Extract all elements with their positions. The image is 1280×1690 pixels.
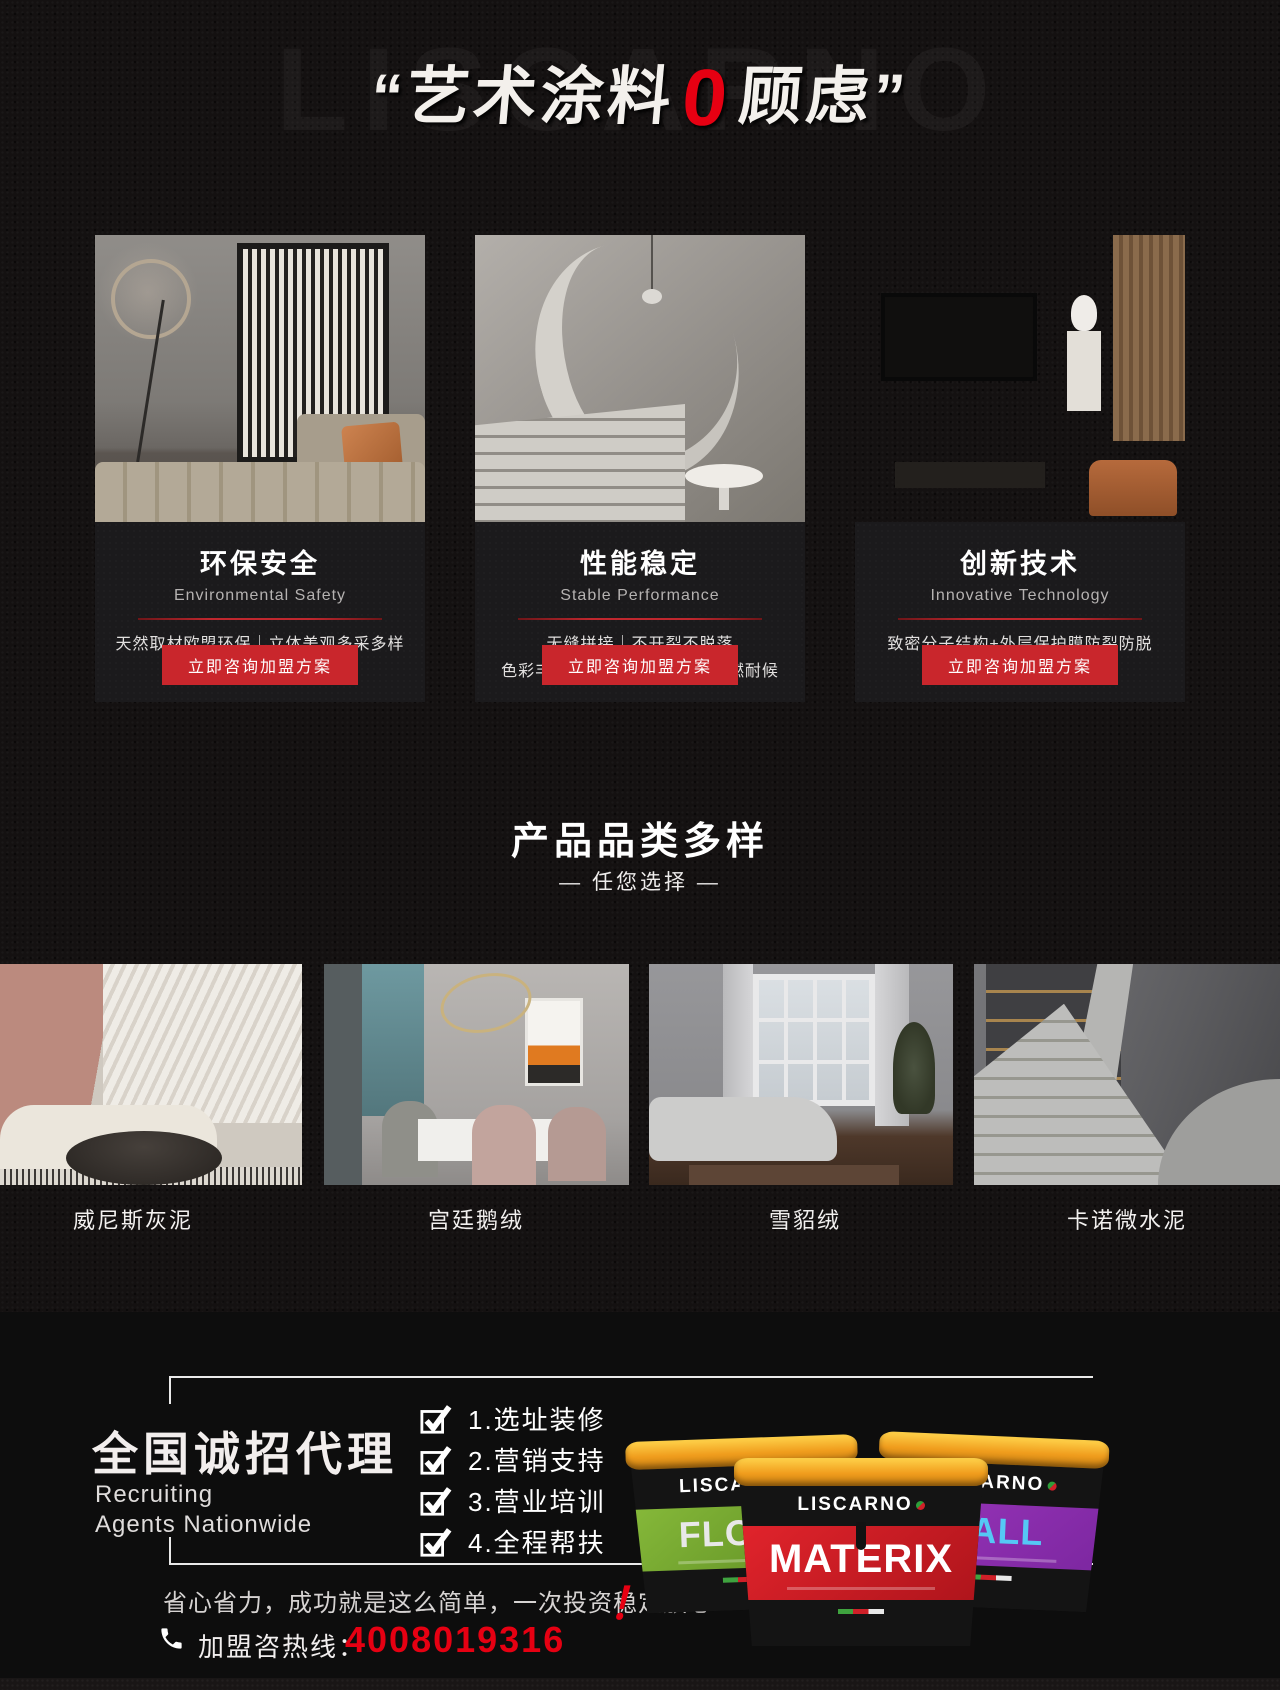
card-text-panel: 环保安全 Environmental Safety 天然取材欧盟环保｜立体美观多… <box>95 522 425 702</box>
sofa <box>95 462 425 522</box>
product-label: 雪貂绒 <box>769 1203 841 1235</box>
products-section-title: 产品品类多样 <box>0 810 1280 865</box>
agency-recruitment-section: 全国诚招代理 Recruiting Agents Nationwide 1.选址… <box>0 1312 1280 1678</box>
paint-buckets: LISCARNO FLOOR LISCARNO WALL <box>612 1430 1122 1670</box>
product-image-mink-velvet <box>649 964 953 1185</box>
product-label: 威尼斯灰泥 <box>73 1203 193 1235</box>
card-photo-spiral-staircase <box>475 235 805 522</box>
checkbox-icon <box>420 1444 452 1476</box>
consult-join-button[interactable]: 立即咨询加盟方案 <box>542 645 738 685</box>
dining-chair <box>472 1105 536 1185</box>
frame-line-top <box>169 1376 1093 1378</box>
card-subtitle: Stable Performance <box>475 587 805 605</box>
card-title: 创新技术 <box>855 522 1185 581</box>
wood-floor <box>689 1165 899 1185</box>
orange-chair <box>1089 460 1177 516</box>
bucket-lid <box>734 1458 988 1486</box>
product-image-palace-velvet <box>324 964 629 1185</box>
card-title: 环保安全 <box>95 522 425 581</box>
checklist-label: 3.营业培训 <box>468 1482 606 1519</box>
striped-wall <box>103 964 302 1123</box>
staircase-steps <box>475 404 685 522</box>
brand-logo-dot <box>916 1501 925 1510</box>
checklist-label: 1.选址装修 <box>468 1400 606 1437</box>
checklist-label: 4.全程帮扶 <box>468 1523 606 1560</box>
page-title-suffix: 顾虑” <box>736 62 912 132</box>
bucket-brand: LISCARNO <box>797 1494 912 1515</box>
frame-line-bottom-left <box>169 1537 171 1565</box>
bucket-fine-print <box>787 1587 934 1590</box>
teal-accent-wall <box>362 964 424 1116</box>
curved-partition <box>1158 1079 1280 1185</box>
side-table <box>685 464 763 488</box>
products-section-subtitle: — 任您选择 — <box>0 866 1280 896</box>
card-subtitle: Innovative Technology <box>855 587 1185 605</box>
pendant-lamp <box>642 289 662 304</box>
checklist-label: 2.营销支持 <box>468 1441 606 1478</box>
tv-cabinet <box>895 462 1045 488</box>
brand-logo-dot <box>1047 1481 1056 1490</box>
red-divider <box>138 618 382 620</box>
card-photo-living-room <box>95 235 425 522</box>
product-image-micro-cement <box>974 964 1280 1185</box>
promo-page: LISCARNO “艺术涂料0顾虑” 环保安全 Environmental Sa… <box>0 0 1280 1690</box>
product-label: 卡诺微水泥 <box>1067 1203 1187 1235</box>
phone-icon <box>158 1625 185 1652</box>
hotline-label: 加盟咨热线： <box>198 1627 366 1664</box>
product-label: 宫廷鹅绒 <box>428 1203 524 1235</box>
plant <box>893 1022 935 1114</box>
checkbox-icon <box>420 1403 452 1435</box>
tv-panel <box>881 293 1037 381</box>
bottom-texture-strip <box>0 1678 1280 1690</box>
consult-join-button[interactable]: 立即咨询加盟方案 <box>922 645 1118 685</box>
feature-card-stable-performance: 性能稳定 Stable Performance 无缝拼接｜不开裂不脱落 色彩丰富… <box>475 235 805 702</box>
checklist-item: 4.全程帮扶 <box>420 1523 606 1560</box>
floor-lamp-ring <box>111 259 191 339</box>
frame-line-top-left <box>169 1376 171 1404</box>
page-title: “艺术涂料0顾虑” <box>0 46 1280 144</box>
product-image-venetian-plaster <box>0 964 302 1185</box>
checkbox-icon <box>420 1526 452 1558</box>
card-text-panel: 创新技术 Innovative Technology 致密分子结构+外层保护膜防… <box>855 522 1185 702</box>
agency-subtitle-line1: Recruiting <box>95 1481 213 1509</box>
card-text-panel: 性能稳定 Stable Performance 无缝拼接｜不开裂不脱落 色彩丰富… <box>475 522 805 702</box>
consult-join-button[interactable]: 立即咨询加盟方案 <box>162 645 358 685</box>
card-photo-tv-lounge <box>855 235 1185 522</box>
bucket-label: MATERIX <box>734 1526 988 1600</box>
card-title: 性能稳定 <box>475 522 805 581</box>
paint-bucket-materix: LISCARNO MATERIX <box>734 1458 988 1646</box>
page-title-prefix: “艺术涂料 <box>368 62 678 132</box>
dining-chair <box>548 1107 606 1181</box>
agency-title: 全国诚招代理 <box>92 1418 398 1484</box>
card-subtitle: Environmental Safety <box>95 587 425 605</box>
bucket-body: LISCARNO MATERIX <box>734 1478 988 1646</box>
window <box>753 974 875 1106</box>
page-title-zero: 0 <box>671 53 743 142</box>
round-coffee-table <box>66 1131 222 1185</box>
ring-chandelier <box>435 965 537 1041</box>
bust-sculpture <box>1071 295 1097 331</box>
checklist-item: 1.选址装修 <box>420 1400 606 1437</box>
curved-sofa <box>649 1097 837 1161</box>
agency-subtitle-line2: Agents Nationwide <box>95 1511 312 1539</box>
checklist-item: 2.营销支持 <box>420 1441 606 1478</box>
wood-slat-wall <box>1113 235 1185 441</box>
checklist-item: 3.营业培训 <box>420 1482 606 1519</box>
wall-art-poster <box>525 998 583 1086</box>
feature-card-environmental-safety: 环保安全 Environmental Safety 天然取材欧盟环保｜立体美观多… <box>95 235 425 702</box>
glass-panel <box>324 964 362 1185</box>
red-divider <box>898 618 1142 620</box>
pendant-cord <box>651 235 653 289</box>
checkbox-icon <box>420 1485 452 1517</box>
hotline-number[interactable]: 4008019316 <box>345 1619 565 1661</box>
paint-drip <box>856 1522 866 1550</box>
red-divider <box>518 618 762 620</box>
sculpture-pedestal <box>1067 331 1101 411</box>
flag-stripe <box>838 1609 884 1614</box>
feature-card-innovative-technology: 创新技术 Innovative Technology 致密分子结构+外层保护膜防… <box>855 235 1185 702</box>
